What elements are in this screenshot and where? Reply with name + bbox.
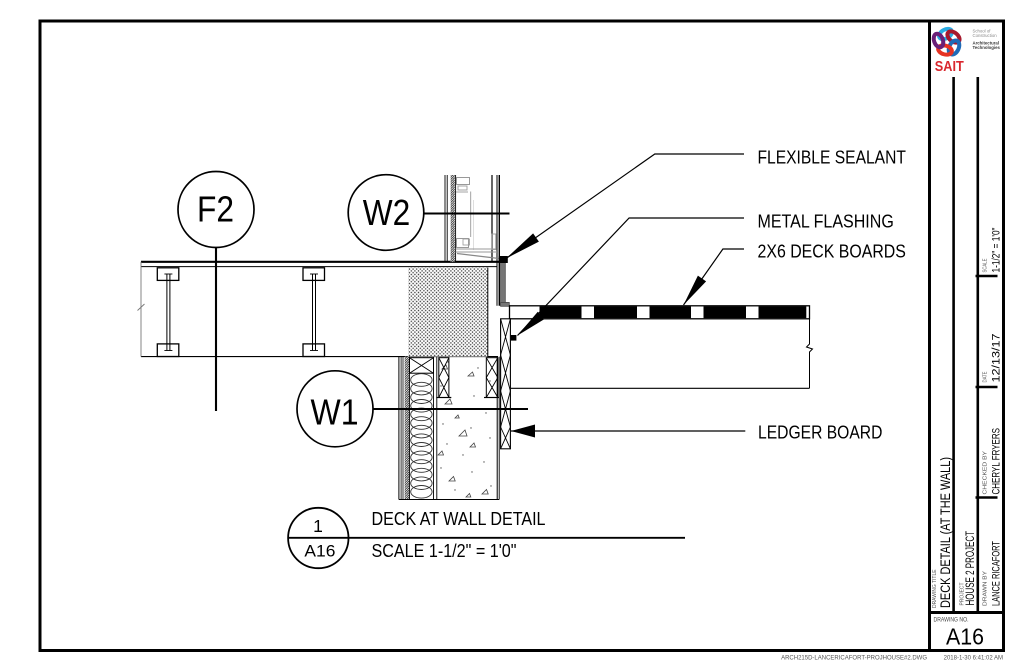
svg-text:Construction: Construction	[973, 33, 998, 38]
svg-text:CHERYL FRYERS: CHERYL FRYERS	[991, 428, 1003, 495]
svg-text:F2: F2	[197, 189, 234, 230]
svg-text:CHECKED BY: CHECKED BY	[983, 451, 989, 495]
svg-text:LEDGER BOARD: LEDGER BOARD	[758, 421, 882, 442]
svg-text:1-1/2" = 1'0": 1-1/2" = 1'0"	[991, 227, 1003, 272]
svg-text:HOUSE 2 PROJECT: HOUSE 2 PROJECT	[963, 531, 977, 606]
svg-text:METAL FLASHING: METAL FLASHING	[758, 210, 894, 231]
svg-text:DECK AT WALL DETAIL: DECK AT WALL DETAIL	[372, 508, 546, 529]
svg-text:SCALE: SCALE	[983, 258, 989, 272]
svg-text:SCALE 1-1/2" = 1'0": SCALE 1-1/2" = 1'0"	[372, 540, 517, 561]
svg-text:DECK DETAIL (AT THE WALL): DECK DETAIL (AT THE WALL)	[938, 457, 953, 608]
svg-text:SAIT: SAIT	[935, 59, 964, 75]
svg-text:W1: W1	[311, 392, 359, 433]
svg-text:2X6 DECK BOARDS: 2X6 DECK BOARDS	[758, 241, 906, 262]
svg-text:ARCH215D-LANCERICAFORT-PROJHOU: ARCH215D-LANCERICAFORT-PROJHOUSE#2.DWG	[781, 656, 927, 662]
svg-text:1: 1	[313, 516, 323, 536]
svg-text:A16: A16	[304, 543, 335, 561]
svg-text:DATE: DATE	[983, 371, 989, 382]
svg-text:DRAWN BY: DRAWN BY	[983, 571, 989, 606]
svg-text:2018-1-30 6:41:02 AM: 2018-1-30 6:41:02 AM	[944, 656, 1003, 662]
svg-text:A16: A16	[946, 623, 984, 649]
svg-text:LANCE RICAFORT: LANCE RICAFORT	[991, 541, 1003, 606]
svg-text:Technologies: Technologies	[973, 45, 1001, 50]
svg-text:FLEXIBLE SEALANT: FLEXIBLE SEALANT	[758, 147, 906, 168]
svg-text:12/13/17: 12/13/17	[991, 334, 1003, 383]
svg-text:W2: W2	[363, 192, 411, 233]
